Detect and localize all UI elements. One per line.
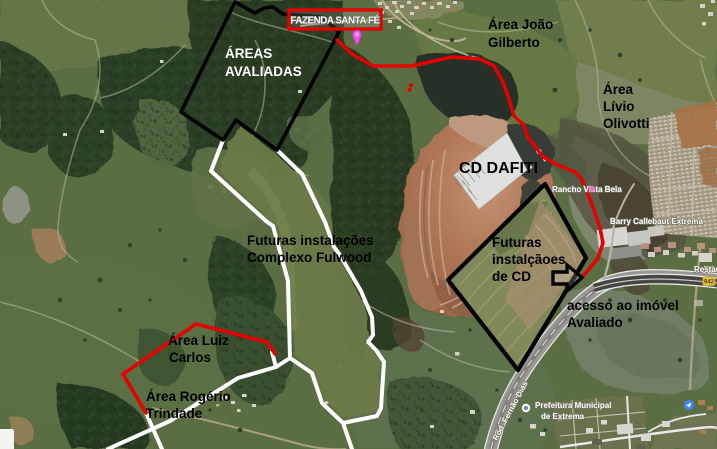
svg-text:Carlos: Carlos <box>169 350 211 365</box>
svg-text:Rancho Vista Bela: Rancho Vista Bela <box>552 185 622 194</box>
svg-text:Prefeitura Municipal: Prefeitura Municipal <box>535 401 611 410</box>
svg-text:Futuras instalações: Futuras instalações <box>247 233 374 248</box>
svg-text:Avaliado: Avaliado <box>567 315 623 330</box>
svg-text:FAZENDA SANTA FÉ: FAZENDA SANTA FÉ <box>290 15 380 27</box>
svg-text:instalçãoes: instalçãoes <box>492 252 566 267</box>
svg-text:Lívio: Lívio <box>603 99 635 114</box>
svg-text:acesso ao imóvel: acesso ao imóvel <box>567 298 679 313</box>
svg-text:Complexo Fulwood: Complexo Fulwood <box>247 250 372 265</box>
svg-text:de Extrema: de Extrema <box>541 412 585 421</box>
svg-text:ÁREAS: ÁREAS <box>225 46 272 61</box>
svg-text:Restau: Restau <box>694 265 717 274</box>
svg-text:Área: Área <box>603 82 634 97</box>
svg-text:Área Rogério: Área Rogério <box>146 389 231 404</box>
svg-text:Área Luiz: Área Luiz <box>168 333 229 348</box>
svg-text:Barry Callebaut Extrema: Barry Callebaut Extrema <box>610 217 703 226</box>
svg-text:Gilberto: Gilberto <box>488 35 540 50</box>
svg-text:Olivotti: Olivotti <box>603 116 650 131</box>
svg-text:AVALIADAS: AVALIADAS <box>225 64 302 79</box>
svg-text:CD DAFITI: CD DAFITI <box>459 160 538 177</box>
svg-text:942: 942 <box>704 280 715 286</box>
svg-text:Trindade: Trindade <box>146 406 203 421</box>
svg-text:Futuras: Futuras <box>492 235 542 250</box>
svg-text:Área João: Área João <box>488 17 553 32</box>
svg-text:de CD: de CD <box>492 269 531 284</box>
